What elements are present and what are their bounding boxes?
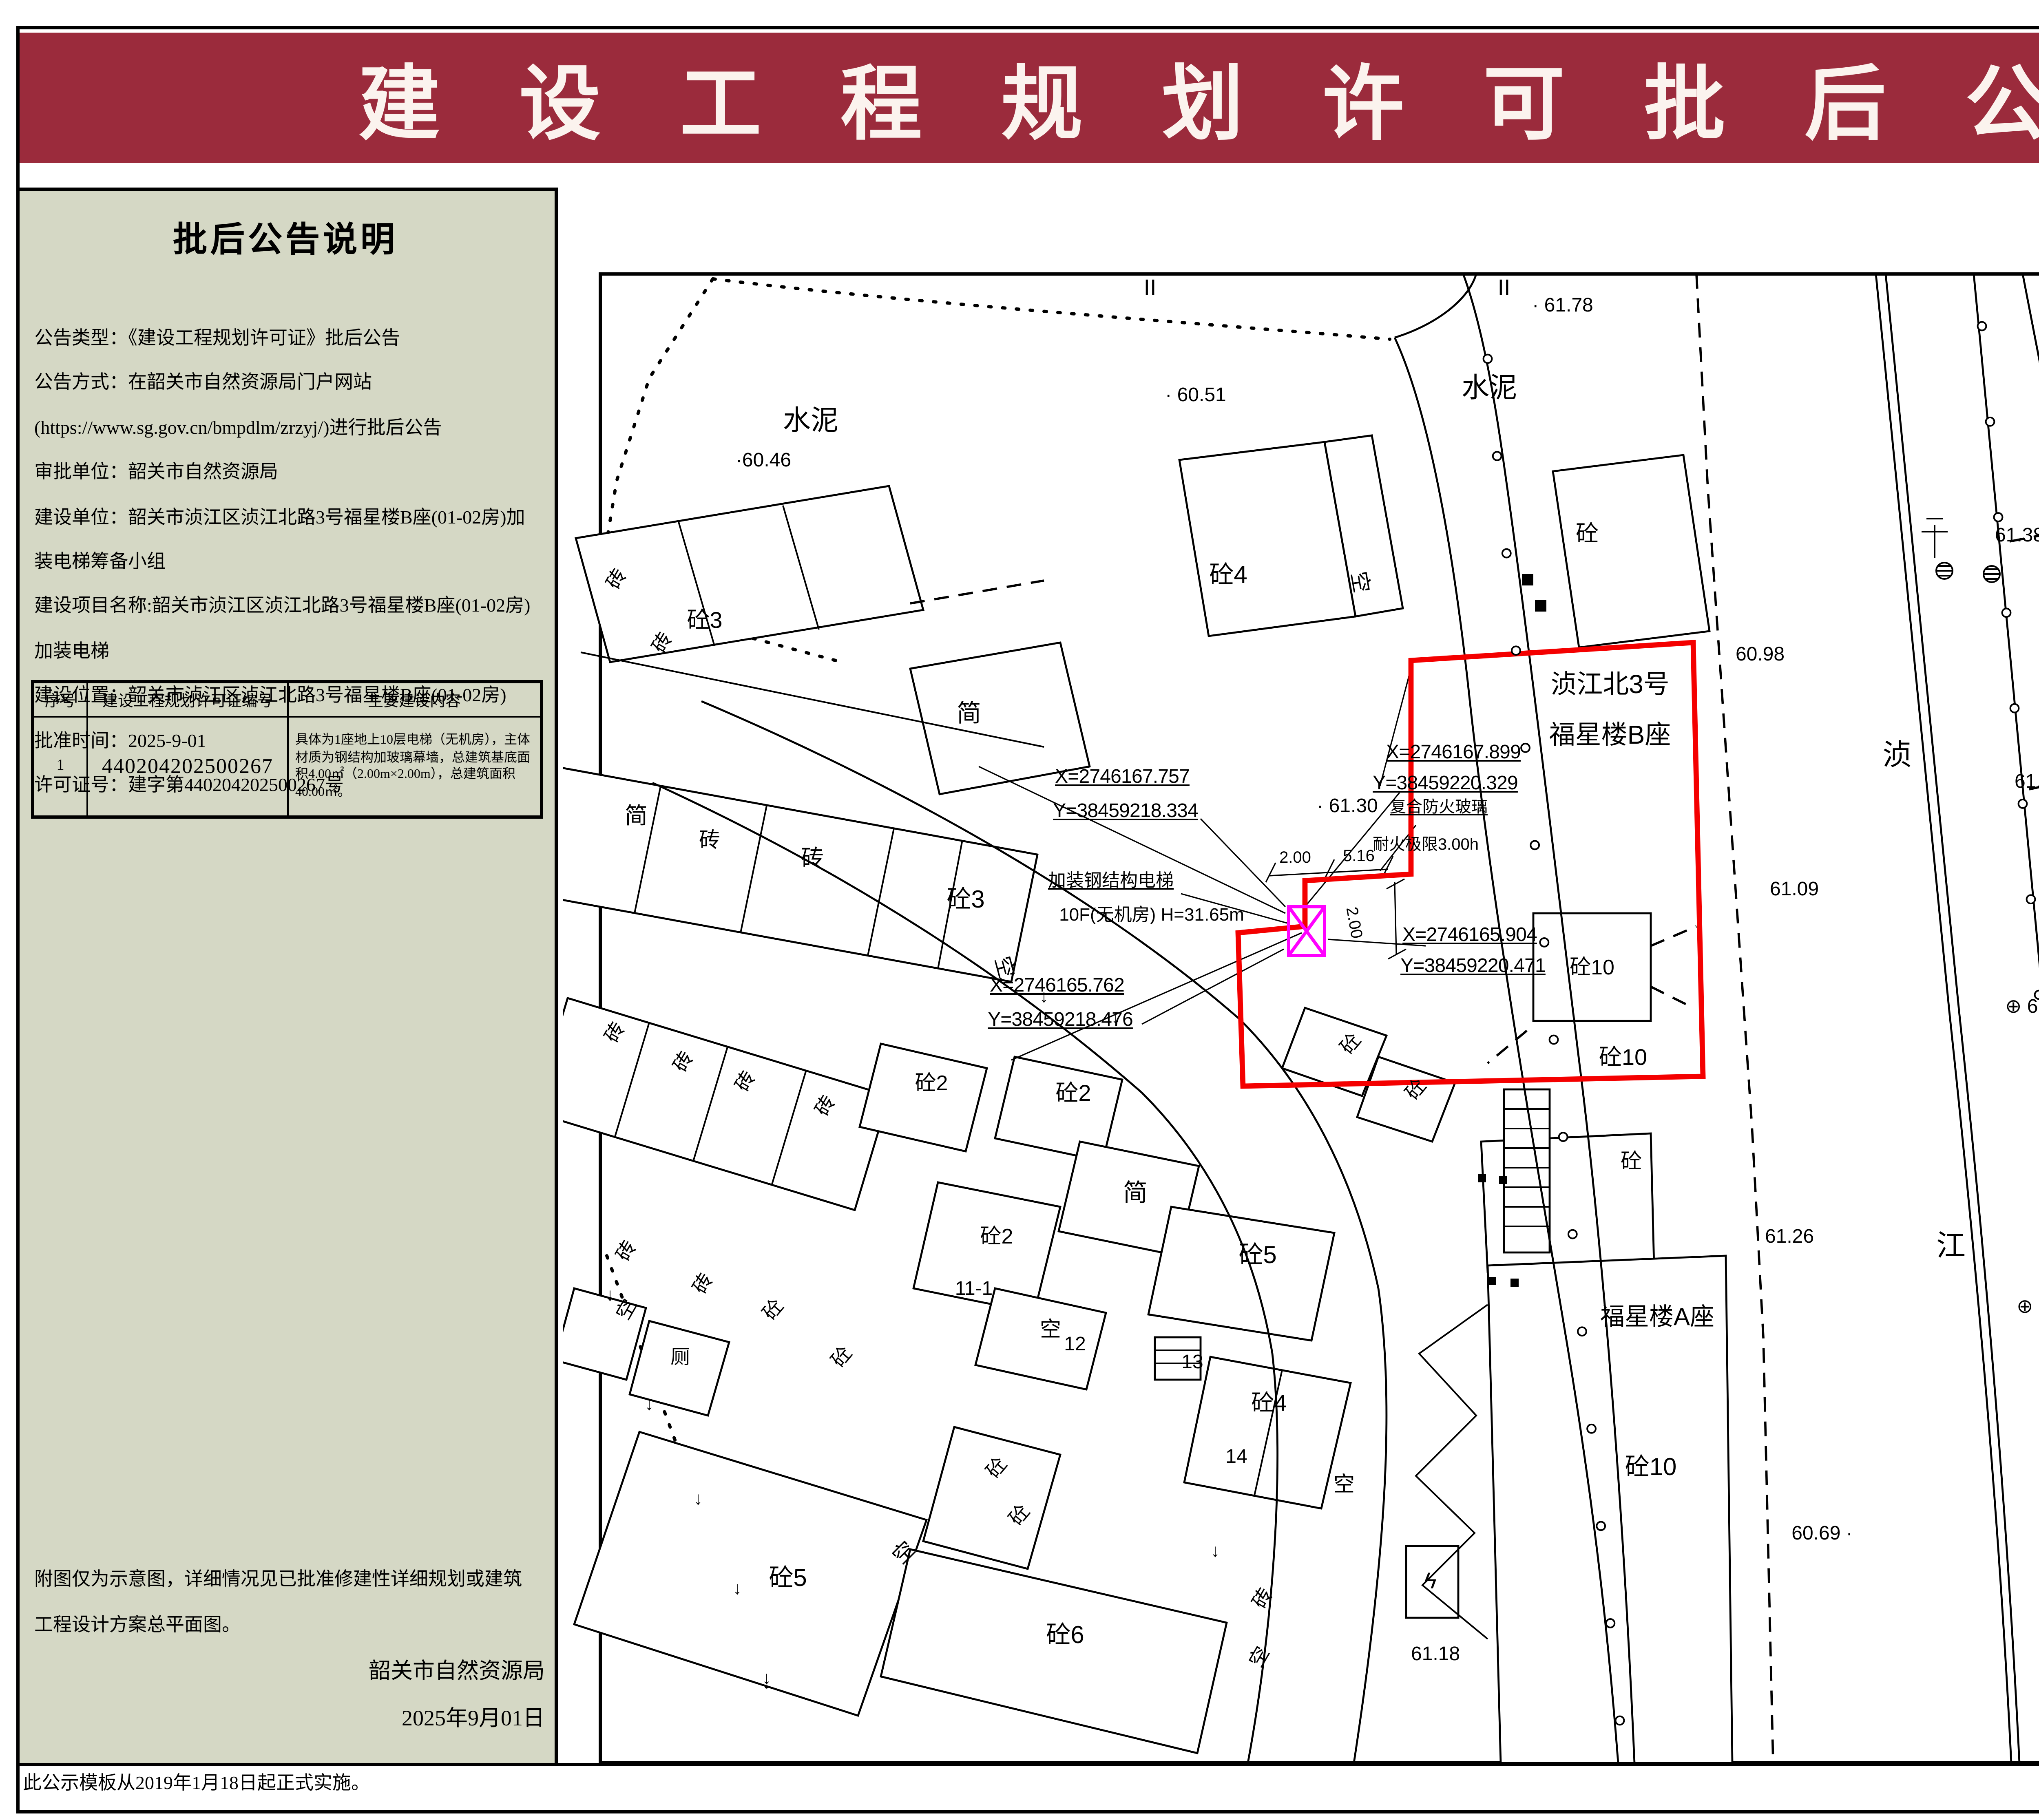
text-line: (https://www.sg.gov.cn/bmpdlm/zrzyj/)进行批… bbox=[34, 407, 543, 452]
notice-description-panel: 批后公告说明 公告类型：《建设工程规划许可证》批后公告公告方式：在韶关市自然资源… bbox=[20, 188, 558, 1763]
text-line: 公告类型：《建设工程规划许可证》批后公告 bbox=[34, 318, 543, 363]
footer-note: 此公示模板从2019年1月18日起正式实施。 bbox=[23, 1769, 370, 1796]
text-line: 附图仅为示意图，详细情况见已批准修建性详细规划或建筑 bbox=[34, 1557, 546, 1603]
cell-permit-no: 440204202500267 bbox=[87, 717, 288, 817]
col-header-content: 主要建设内容 bbox=[288, 682, 542, 717]
notice-page: 建 设 工 程 规 划 许 可 批 后 公 告 批后公告说明 公告类型：《建设工… bbox=[0, 0, 2039, 1820]
permit-table: 序号 建设工程规划许可证编号 主要建设内容 1 440204202500267 … bbox=[31, 680, 543, 819]
issue-date: 2025年9月01日 bbox=[20, 1699, 594, 1732]
cell-content: 具体为1座地上10层电梯（无机房），主体材质为钢结构加玻璃幕墙，总建筑基底面积4… bbox=[288, 717, 542, 817]
text-line: 装电梯筹备小组 bbox=[34, 541, 543, 586]
text-line: 审批单位：韶关市自然资源局 bbox=[34, 452, 543, 497]
col-header-no: 序号 bbox=[33, 682, 87, 717]
text-line: 公告方式：在韶关市自然资源局门户网站 bbox=[34, 363, 543, 408]
title-banner: 建 设 工 程 规 划 许 可 批 后 公 告 bbox=[20, 33, 2039, 163]
text-line: 加装电梯 bbox=[34, 631, 543, 676]
text-line: 建设单位：韶关市浈江区浈江北路3号福星楼B座(01-02房)加 bbox=[34, 497, 543, 542]
agency-name: 韶关市自然资源局 bbox=[20, 1652, 581, 1685]
page-title: 建 设 工 程 规 划 许 可 批 后 公 告 bbox=[329, 39, 2039, 157]
text-line: 建设项目名称:韶关市浈江区浈江北路3号福星楼B座(01-02房) bbox=[34, 586, 543, 631]
table-row: 1 440204202500267 具体为1座地上10层电梯（无机房），主体材质… bbox=[33, 717, 542, 817]
site-plan-drawing bbox=[563, 163, 2039, 1763]
panel-heading: 批后公告说明 bbox=[20, 214, 551, 263]
col-header-permit: 建设工程规划许可证编号 bbox=[87, 682, 288, 717]
cell-no: 1 bbox=[33, 717, 87, 817]
note-lines: 附图仅为示意图，详细情况见已批准修建性详细规划或建筑工程设计方案总平面图。 bbox=[34, 1557, 546, 1649]
text-line: 工程设计方案总平面图。 bbox=[34, 1603, 546, 1649]
footer-divider bbox=[16, 1763, 2039, 1766]
